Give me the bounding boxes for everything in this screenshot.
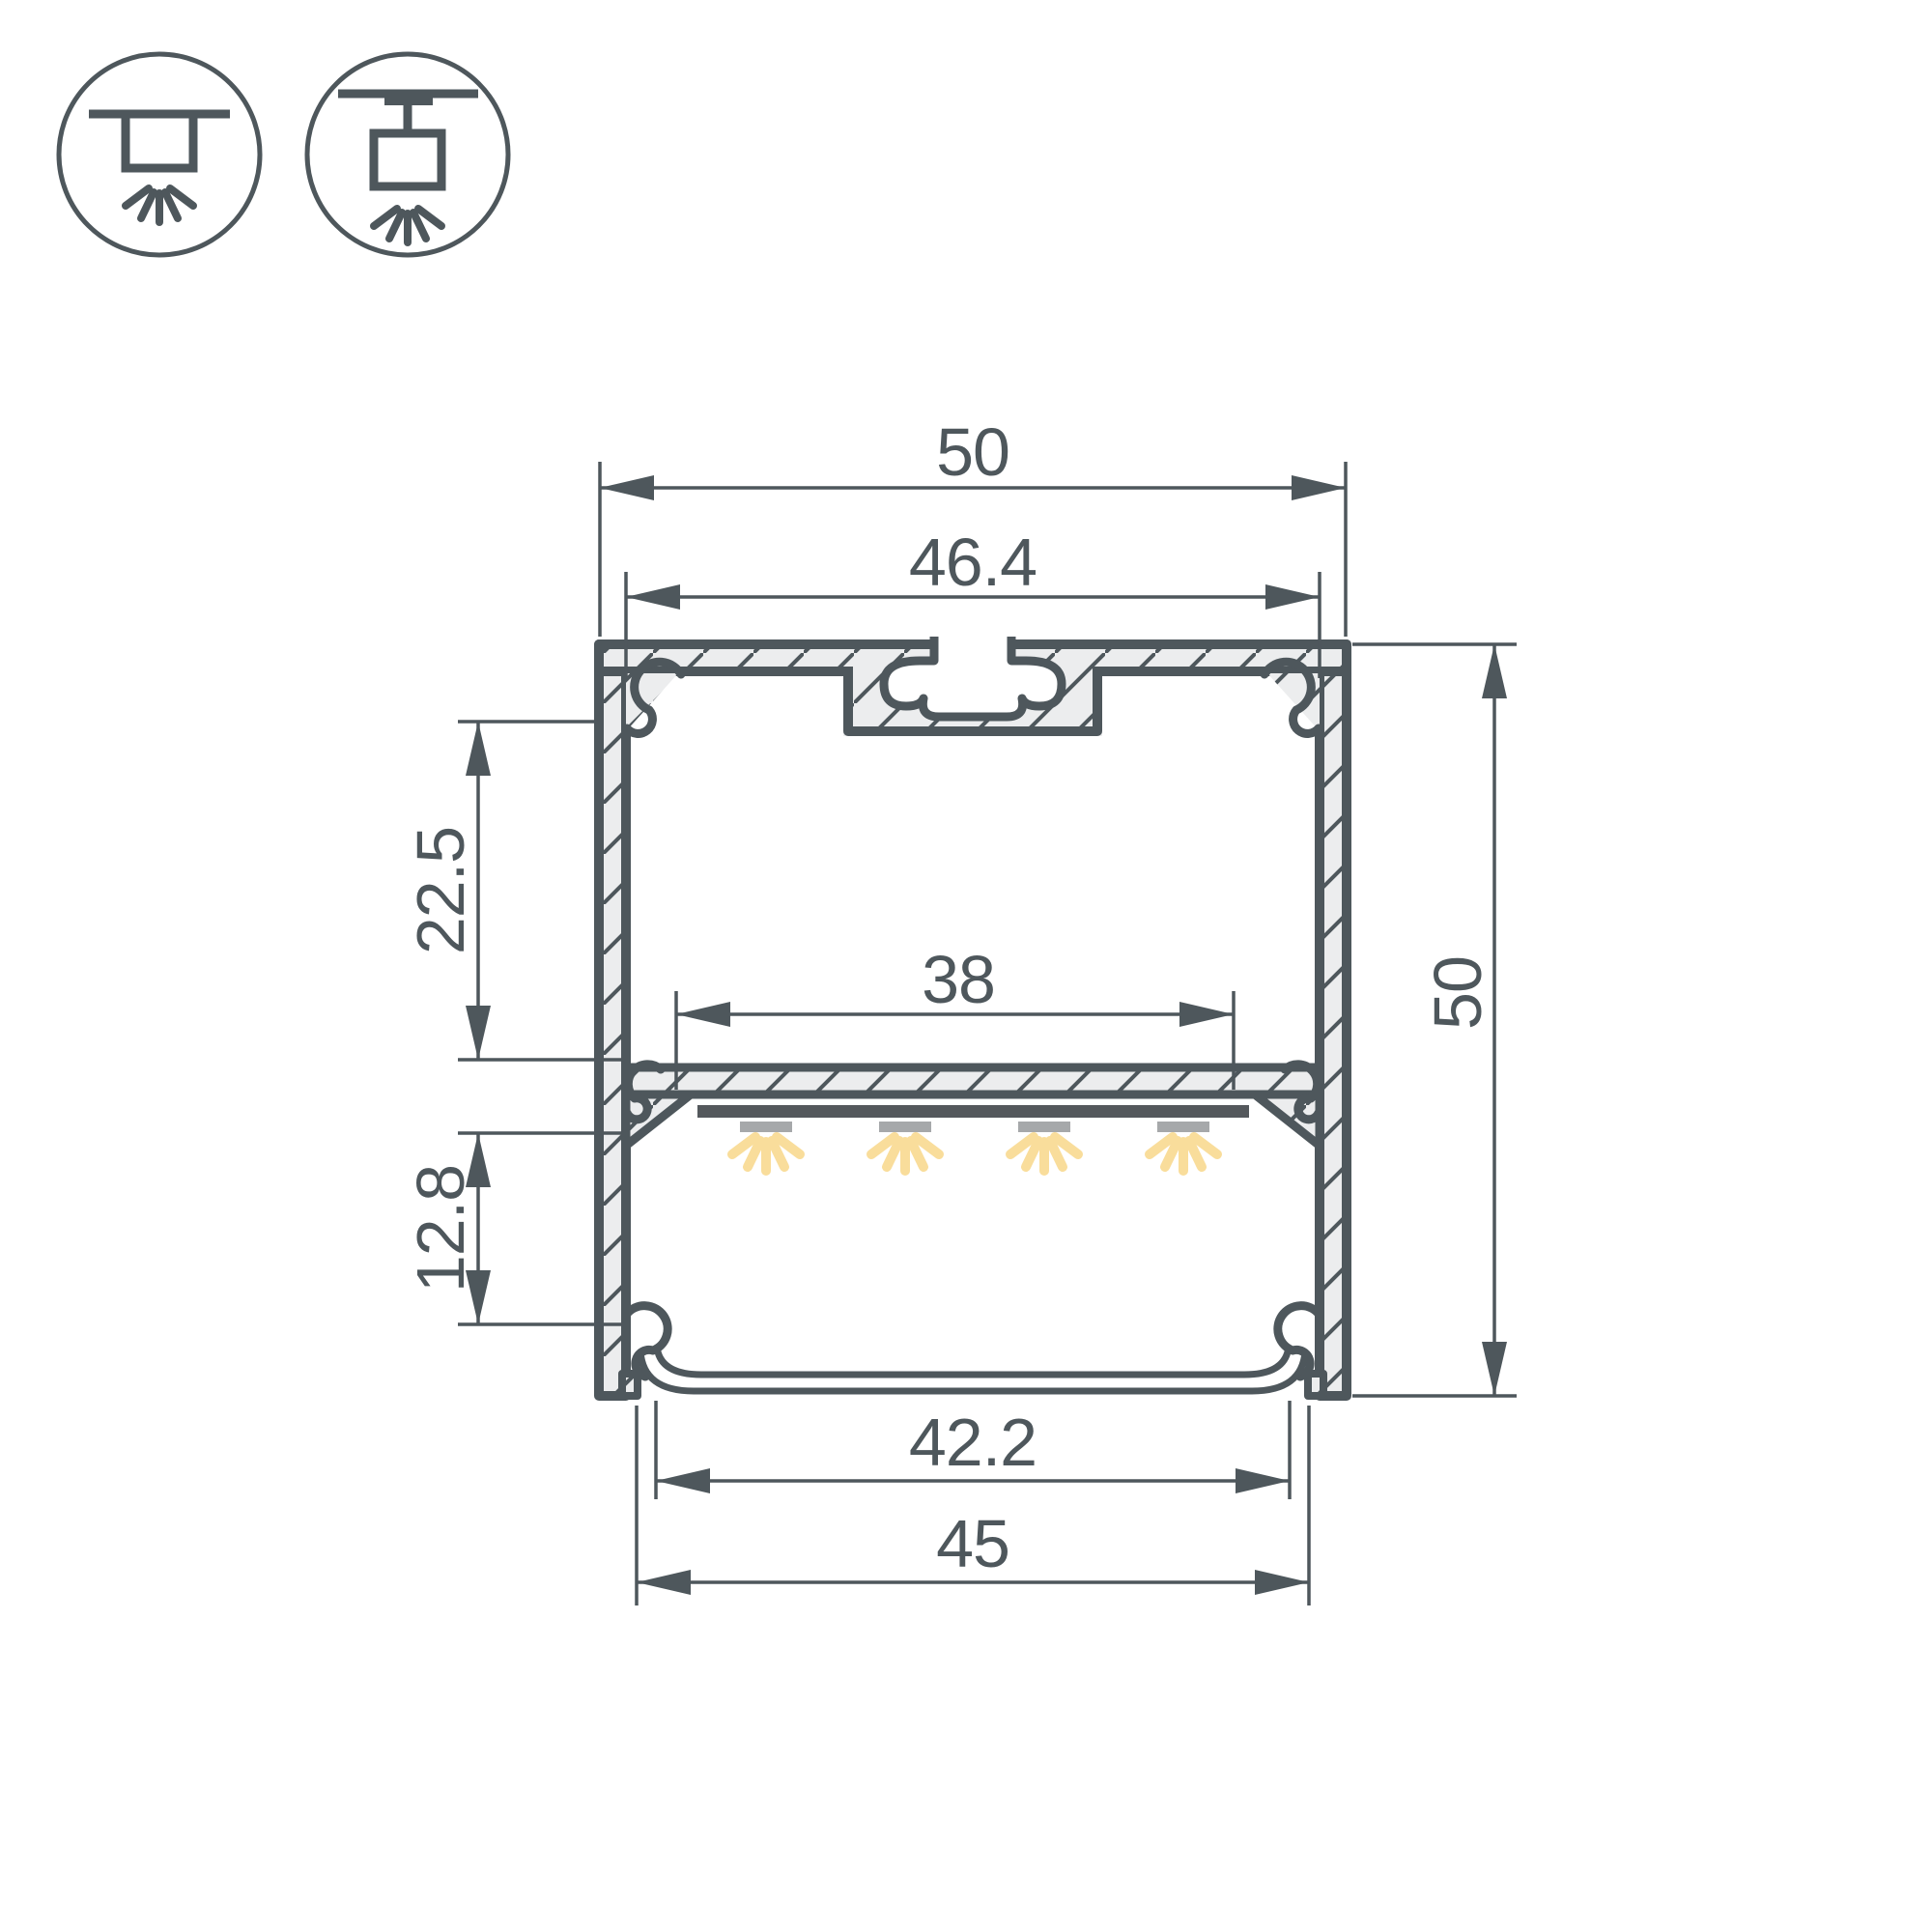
- led-shelf: [626, 1067, 1320, 1094]
- left-wall: [599, 644, 626, 1396]
- dim-upper-chamber-depth: 22.5: [403, 827, 478, 954]
- dim-diffuser-width: 45: [936, 1506, 1009, 1581]
- led-module: [1018, 1122, 1070, 1132]
- light-rays-icon: [126, 188, 193, 222]
- mount-icons: [59, 54, 508, 255]
- led-module: [740, 1122, 792, 1132]
- dim-diffuser-inner-width: 42.2: [909, 1405, 1037, 1480]
- profile-cross-section-drawing: 50 46.4 22.5 38 12.8 50 42.2 45: [0, 0, 1932, 1932]
- light-rays: [732, 1137, 1217, 1171]
- dim-outer-height: 50: [1420, 956, 1495, 1030]
- right-foot: [1308, 1374, 1323, 1396]
- led-strip: [697, 1105, 1249, 1171]
- light-ray-fan: [871, 1137, 939, 1171]
- right-wall: [1320, 644, 1347, 1396]
- led-module: [879, 1122, 931, 1132]
- right-screw-ports: [1264, 662, 1319, 1377]
- pendant-mount-icon: [307, 54, 508, 255]
- left-foot: [622, 1374, 638, 1396]
- led-pcb-bar: [697, 1105, 1249, 1118]
- dim-led-platform-width: 38: [922, 942, 995, 1017]
- surface-mount-icon: [59, 54, 260, 255]
- light-ray-fan: [1010, 1137, 1078, 1171]
- technical-drawing-page: 50 46.4 22.5 38 12.8 50 42.2 45: [0, 0, 1932, 1932]
- light-rays-icon: [374, 209, 441, 242]
- dim-lower-chamber-depth: 12.8: [403, 1165, 478, 1293]
- left-screw-ports: [627, 662, 681, 1377]
- dim-top-inner-width: 46.4: [909, 525, 1037, 600]
- diffuser-cover: [640, 1347, 1305, 1391]
- led-module: [1157, 1122, 1209, 1132]
- dim-outer-width: 50: [936, 414, 1009, 490]
- light-ray-fan: [1150, 1137, 1217, 1171]
- light-ray-fan: [732, 1137, 800, 1171]
- led-modules: [740, 1122, 1209, 1132]
